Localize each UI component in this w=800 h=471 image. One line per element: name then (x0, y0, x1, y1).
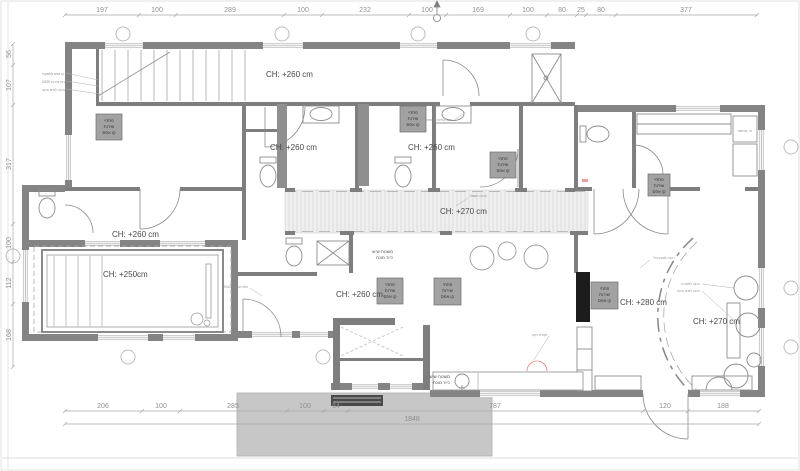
shower (532, 54, 561, 103)
door (633, 145, 663, 175)
grid-marker (526, 27, 540, 41)
chair (734, 276, 758, 300)
ceiling-label: CH: +260 cm (408, 143, 455, 152)
service-box: פתחישירותקו אפס (591, 282, 618, 309)
window (758, 130, 765, 170)
window (510, 42, 551, 49)
overall-dimension-label: 1848 (404, 416, 420, 423)
svg-text:קו אפס: קו אפס (103, 130, 116, 135)
dimension-label: 80 (597, 7, 605, 14)
grid-marker (784, 340, 798, 354)
annotation: הכנה למזגן עילי (653, 256, 675, 260)
grid-marker (784, 140, 798, 154)
floor-plan-sheet: פתחישירותקו אפס פתחישירותקו אפס פתחישירו… (0, 0, 800, 471)
door (140, 189, 180, 229)
svg-text:שירות: שירות (498, 162, 509, 167)
service-box: פתחישירותקו אפס (490, 152, 516, 178)
pool (42, 250, 223, 332)
svg-text:שירות: שירות (408, 116, 419, 121)
entrance-door (643, 394, 688, 439)
bottom-counter-left (595, 376, 641, 390)
window (163, 334, 195, 341)
window (252, 331, 292, 338)
ceiling-label: CH: +260 cm (270, 143, 317, 152)
dimension-label: 289 (224, 7, 236, 14)
window (480, 390, 540, 397)
annotation: הכנה למים וניקוז (677, 289, 700, 293)
laundry-label: ח. כביסה (738, 129, 752, 133)
service-box: פתחישירותקו אפס (96, 114, 122, 140)
svg-text:פתחי: פתחי (654, 177, 664, 182)
window (676, 105, 720, 112)
dimension-label: 197 (96, 7, 108, 14)
ceiling-label: CH: +260 cm (266, 70, 313, 79)
counter-label: משטח שיש (429, 374, 450, 379)
svg-text:פתחי: פתחי (385, 282, 395, 287)
grid-marker (275, 27, 289, 41)
pool-deck-dashed (34, 246, 231, 332)
toilet (286, 238, 302, 266)
dimension-label: 232 (359, 7, 371, 14)
black-wall-segment (576, 272, 590, 322)
dimension-label: 100 (421, 7, 433, 14)
dimension-label: 100 (297, 7, 309, 14)
svg-text:שירות: שירות (599, 292, 610, 297)
window (263, 42, 303, 49)
bottom-counter-right (692, 376, 752, 390)
window (400, 42, 437, 49)
dimension-label: 169 (472, 7, 484, 14)
dimension-label: 112 (6, 277, 13, 288)
grid-marker (116, 27, 130, 41)
ceiling-label: CH: +270 cm (693, 317, 740, 326)
dimension-label: 100 (6, 237, 13, 249)
dimension-label: 168 (6, 329, 13, 341)
annotation: פתח שירות 20/20 (223, 285, 248, 289)
dimension-label: 64 (332, 403, 340, 410)
dimension-label: 317 (6, 158, 13, 170)
ceiling-label: CH: +280 cm (620, 298, 667, 307)
annotation: פתח שירות 20/20 (42, 80, 67, 84)
grid-marker (784, 281, 798, 295)
dimension-label: 787 (489, 403, 501, 410)
sink (303, 106, 339, 123)
toilet (39, 190, 55, 218)
red-accent-mark (582, 179, 588, 182)
svg-text:שירות: שירות (442, 288, 453, 293)
svg-text:פתחי: פתחי (408, 110, 418, 115)
door (65, 205, 93, 233)
dimension-label: 100 (299, 403, 311, 410)
annotation: הכנת חשמל (470, 194, 487, 198)
dimension-label: 285 (227, 403, 239, 410)
grid-marker (411, 27, 425, 41)
dimension-label: 100 (155, 403, 167, 410)
window (758, 328, 765, 366)
annotation: נקודת ניקוז (532, 333, 548, 337)
svg-text:קו אפס: קו אפס (653, 189, 666, 194)
service-box: פתחישירותקו אפס (648, 174, 670, 196)
deck (237, 393, 492, 456)
dimension-label: 100 (151, 7, 163, 14)
svg-text:קו אפס: קו אפס (407, 122, 420, 127)
pool-room (34, 246, 231, 332)
ceiling-label: CH: +250cm (103, 270, 148, 279)
dimension-label: 25 (577, 7, 585, 14)
window (700, 390, 740, 397)
grid-marker (316, 350, 330, 364)
toilet (580, 126, 609, 142)
toilet (395, 157, 411, 187)
stool (498, 242, 516, 260)
dimension-label: 100 (522, 7, 534, 14)
curved-wall (658, 238, 693, 394)
window (22, 250, 29, 302)
annotation: פתח שירות קו אפס (426, 118, 452, 122)
counter-label: כיור מונח (376, 255, 394, 260)
svg-text:שירות: שירות (385, 288, 396, 293)
dimension-label: 188 (717, 403, 729, 410)
stool (470, 246, 494, 270)
service-box: פתחישירותקו אפס (400, 106, 426, 132)
counter-label: כיור מונח (433, 380, 451, 385)
annotation: קו אפס למשקוף (42, 72, 64, 76)
ceiling-label: CH: +270 cm (440, 207, 487, 216)
void-cross (341, 327, 403, 356)
staircase (98, 50, 245, 101)
north-arrow-icon (434, 1, 441, 22)
floor-plan-drawing: פתחישירותקו אפס פתחישירותקו אפס פתחישירו… (0, 0, 800, 471)
window (65, 135, 72, 180)
living-counter (433, 372, 583, 390)
grid-marker (121, 350, 135, 364)
annotation: הכנה למים וניקוז (42, 88, 65, 92)
svg-text:קו אפס: קו אפס (384, 294, 397, 299)
ceiling-label: CH: +260 cm (112, 230, 159, 239)
dining-area (658, 238, 761, 394)
kitchen-counter (637, 114, 731, 134)
window (390, 383, 412, 390)
svg-text:קו אפס: קו אפס (598, 298, 611, 303)
dimension-label: 206 (97, 403, 109, 410)
stool (524, 245, 548, 269)
dimension-label: 80 (558, 7, 566, 14)
svg-text:שירות: שירות (654, 183, 665, 188)
dimension-label: 107 (6, 79, 13, 91)
dimension-label: 377 (680, 7, 692, 14)
door (443, 60, 479, 96)
laundry-cabinet (733, 116, 757, 176)
window (98, 334, 148, 341)
corridor (285, 190, 588, 233)
toilet (260, 157, 276, 187)
window (758, 268, 765, 308)
svg-text:פתחי: פתחי (498, 156, 508, 161)
pool-ladder (206, 264, 211, 318)
dimension-label: 120 (659, 403, 671, 410)
service-box: פתחישירותקו אפס (434, 278, 461, 305)
red-door-arc (527, 361, 547, 371)
svg-text:פתחי: פתחי (104, 118, 114, 123)
ceiling-label: CH: +260 cm (336, 290, 383, 299)
closet (317, 241, 349, 265)
dimension-label: 56 (6, 50, 13, 58)
svg-text:פתחי: פתחי (600, 286, 610, 291)
svg-text:שירות: שירות (104, 124, 115, 129)
svg-text:קו אפס: קו אפס (497, 168, 510, 173)
svg-text:קו אפס: קו אפס (441, 294, 454, 299)
window (352, 383, 378, 390)
counter-label: משטח שיש (372, 249, 393, 254)
window (300, 331, 328, 338)
svg-text:פתחי: פתחי (443, 282, 453, 287)
annotation: הכנה לתאורה (681, 282, 700, 286)
island-counter (727, 303, 740, 358)
window (105, 42, 143, 49)
top-dimension-chain (63, 13, 759, 17)
